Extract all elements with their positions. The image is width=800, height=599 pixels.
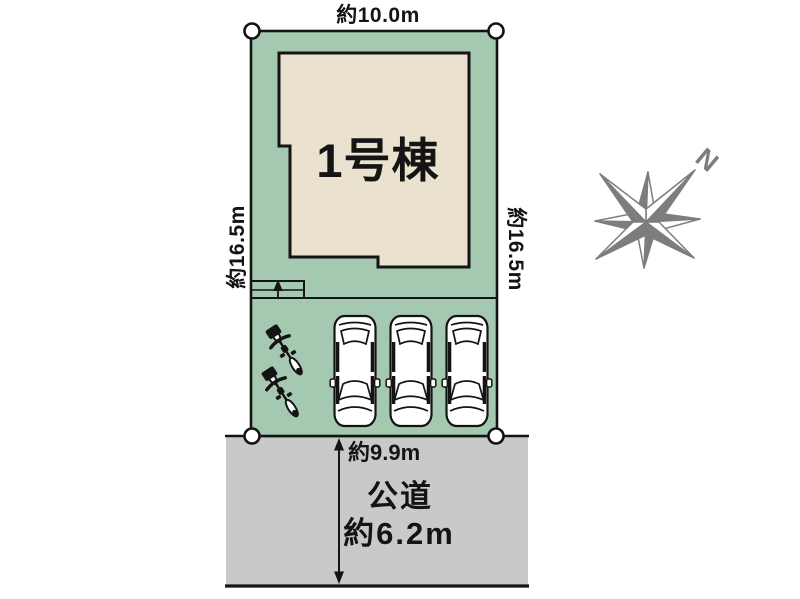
plot-layout-diagram: 1号棟 約10.0m 約16.5m 約16.5m 約9.9m 公道 約6.2m [0, 0, 800, 599]
road-width-label: 約6.2m [343, 516, 455, 551]
dimension-left-depth: 約16.5m [225, 205, 249, 289]
car-top-icon [442, 316, 492, 426]
boundary-point-icon [245, 429, 260, 444]
boundary-point-icon [489, 24, 504, 39]
compass-rose-icon: N [595, 142, 724, 268]
car-top-icon [386, 316, 436, 426]
dimension-frontage: 約9.9m [348, 440, 420, 465]
car-top-icon [330, 316, 380, 426]
parked-cars [330, 316, 492, 426]
north-label: N [690, 142, 724, 178]
road-name-label: 公道 [367, 479, 433, 514]
site-plan-svg: 1号棟 約10.0m 約16.5m 約16.5m 約9.9m 公道 約6.2m [0, 0, 800, 599]
dimension-top-width: 約10.0m [336, 3, 420, 27]
boundary-point-icon [245, 24, 260, 39]
dimension-right-depth: 約16.5m [504, 207, 528, 291]
boundary-point-icon [489, 429, 504, 444]
building-label: 1号棟 [316, 134, 439, 187]
